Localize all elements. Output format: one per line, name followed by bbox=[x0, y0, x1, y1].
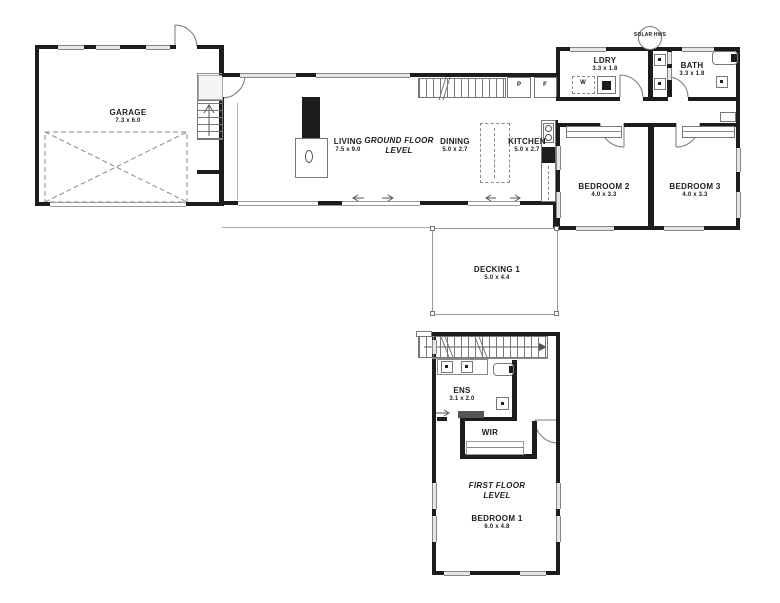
living-name: LIVING bbox=[334, 137, 362, 147]
window bbox=[432, 483, 437, 509]
ens-label: ENS 3.1 x 2.0 bbox=[449, 386, 474, 404]
wall bbox=[35, 45, 39, 206]
toilet-dot-icon bbox=[720, 80, 723, 83]
island-bench bbox=[480, 123, 510, 183]
deck-post bbox=[554, 226, 559, 231]
window bbox=[570, 47, 606, 52]
window bbox=[240, 73, 296, 78]
window bbox=[432, 516, 437, 542]
decking-name: DECKING 1 bbox=[474, 265, 520, 275]
decking-dims: 5.0 x 4.4 bbox=[474, 275, 520, 283]
laundry-door-swing bbox=[620, 75, 643, 97]
living-label: LIVING 7.5 x 9.0 bbox=[334, 137, 362, 155]
wall bbox=[532, 421, 537, 459]
robe-line bbox=[466, 447, 524, 448]
living-dims: 7.5 x 9.0 bbox=[334, 147, 362, 155]
robe-return bbox=[720, 112, 736, 122]
laundry-label: LDRY 3.3 x 1.8 bbox=[592, 56, 617, 74]
bedroom1-dims: 6.0 x 4.8 bbox=[471, 524, 522, 532]
dining-dims: 5.0 x 2.7 bbox=[440, 147, 470, 155]
window bbox=[736, 148, 741, 172]
wall bbox=[437, 417, 447, 421]
island-bench-line bbox=[494, 128, 495, 178]
kitchen-label: KITCHEN 5.0 x 2.7 bbox=[508, 137, 546, 155]
pantry-label: P bbox=[517, 82, 521, 90]
ens-dims: 3.1 x 2.0 bbox=[449, 396, 474, 404]
wall bbox=[186, 202, 223, 206]
window bbox=[96, 45, 120, 50]
fireplace-flue bbox=[302, 97, 320, 138]
wall bbox=[643, 97, 668, 101]
window bbox=[682, 47, 714, 52]
bath-label: BATH 3.3 x 1.8 bbox=[679, 61, 704, 79]
entry-door-swing bbox=[222, 75, 245, 98]
laundry-tub-bowl-icon bbox=[602, 81, 611, 90]
garage-dims: 7.3 x 6.0 bbox=[110, 118, 147, 126]
first-floor-level-label: FIRST FLOOR LEVEL bbox=[469, 481, 526, 501]
bedroom2-label: BEDROOM 2 4.0 x 3.3 bbox=[578, 182, 629, 200]
window bbox=[58, 45, 84, 50]
entry-landing bbox=[198, 75, 223, 100]
robe-line bbox=[566, 131, 622, 132]
wall bbox=[556, 97, 620, 101]
plan-linework bbox=[0, 0, 780, 603]
toilet-dot-icon bbox=[501, 402, 504, 405]
fireplace-icon bbox=[305, 150, 313, 163]
deck-post bbox=[554, 311, 559, 316]
deck-sliding-door bbox=[468, 201, 520, 206]
sink-bowl-icon bbox=[545, 125, 552, 132]
ground-floor-line1: GROUND FLOOR bbox=[364, 136, 433, 146]
deck-post bbox=[430, 311, 435, 316]
bedroom3-label: BEDROOM 3 4.0 x 3.3 bbox=[669, 182, 720, 200]
wir-name: WIR bbox=[482, 428, 498, 438]
window bbox=[556, 483, 561, 509]
wall bbox=[35, 202, 50, 206]
first-floor-stair bbox=[418, 336, 548, 358]
window bbox=[444, 571, 470, 576]
window bbox=[736, 192, 741, 218]
bedroom1-label: BEDROOM 1 6.0 x 4.8 bbox=[471, 514, 522, 532]
bedroom2-robe bbox=[566, 126, 622, 138]
entry-steps bbox=[197, 100, 223, 140]
line bbox=[237, 103, 238, 200]
bathtub-tap-icon bbox=[509, 366, 513, 373]
bedroom2-name: BEDROOM 2 bbox=[578, 182, 629, 192]
basin-dot-icon bbox=[465, 365, 468, 368]
washer-label: W bbox=[580, 80, 586, 88]
wall bbox=[197, 170, 224, 174]
window bbox=[556, 146, 561, 170]
window bbox=[146, 45, 170, 50]
bathtub-tap-icon bbox=[731, 54, 737, 62]
bedroom3-dims: 4.0 x 3.3 bbox=[669, 192, 720, 200]
window bbox=[520, 571, 546, 576]
basin-dot-icon bbox=[445, 365, 448, 368]
ground-floor-line2: LEVEL bbox=[364, 146, 433, 156]
ens-name: ENS bbox=[449, 386, 474, 396]
ens-step bbox=[458, 411, 484, 418]
bedroom3-name: BEDROOM 3 bbox=[669, 182, 720, 192]
kitchen-name: KITCHEN bbox=[508, 137, 546, 147]
window bbox=[556, 192, 561, 218]
window bbox=[556, 516, 561, 542]
wall bbox=[648, 47, 653, 101]
first-floor-line2: LEVEL bbox=[469, 491, 526, 501]
kitchen-dims: 5.0 x 2.7 bbox=[508, 147, 546, 155]
window bbox=[432, 340, 437, 354]
garage-label: GARAGE 7.3 x 6.0 bbox=[110, 108, 147, 126]
internal-stair bbox=[418, 78, 506, 98]
bedroom3-robe bbox=[682, 126, 735, 138]
robe-line bbox=[682, 131, 735, 132]
fridge-label: F bbox=[543, 82, 547, 90]
eave-line bbox=[222, 227, 432, 228]
bedroom1-door-swing bbox=[535, 420, 558, 443]
basin-dot-icon bbox=[658, 58, 661, 61]
garage-car-space bbox=[45, 132, 187, 202]
line bbox=[197, 73, 223, 74]
deck-post bbox=[430, 226, 435, 231]
laundry-dims: 3.3 x 1.8 bbox=[592, 66, 617, 74]
window bbox=[576, 226, 614, 231]
laundry-name: LDRY bbox=[592, 56, 617, 66]
garage-name: GARAGE bbox=[110, 108, 147, 118]
ens-entry-arrow bbox=[436, 410, 449, 416]
garage-panel-door bbox=[50, 202, 186, 207]
wall bbox=[222, 201, 238, 205]
bath-dims: 3.3 x 1.8 bbox=[679, 71, 704, 79]
wall bbox=[648, 123, 654, 226]
wall bbox=[688, 97, 740, 101]
wall bbox=[318, 201, 342, 205]
ground-floor-level-label: GROUND FLOOR LEVEL bbox=[364, 136, 433, 156]
first-floor-line1: FIRST FLOOR bbox=[469, 481, 526, 491]
window bbox=[316, 73, 410, 78]
window bbox=[664, 226, 704, 231]
dining-name: DINING bbox=[440, 137, 470, 147]
garage-door-swing bbox=[175, 25, 197, 47]
solar-hws-label: SOLAR HWS bbox=[634, 32, 666, 38]
bedroom2-dims: 4.0 x 3.3 bbox=[578, 192, 629, 200]
window bbox=[667, 52, 672, 64]
window bbox=[667, 68, 672, 80]
wall bbox=[219, 45, 224, 75]
dining-label: DINING 5.0 x 2.7 bbox=[440, 137, 470, 155]
bath-name: BATH bbox=[679, 61, 704, 71]
wir-robe bbox=[466, 441, 524, 455]
bedroom1-name: BEDROOM 1 bbox=[471, 514, 522, 524]
basin-dot-icon bbox=[658, 82, 661, 85]
bench-dash-line bbox=[548, 166, 549, 200]
decking-label: DECKING 1 5.0 x 4.4 bbox=[474, 265, 520, 283]
floor-plan: GARAGE 7.3 x 6.0 LIVING 7.5 x 9.0 GROUND… bbox=[0, 0, 780, 603]
sink-bowl-icon bbox=[545, 134, 552, 141]
wir-label: WIR bbox=[482, 428, 498, 438]
